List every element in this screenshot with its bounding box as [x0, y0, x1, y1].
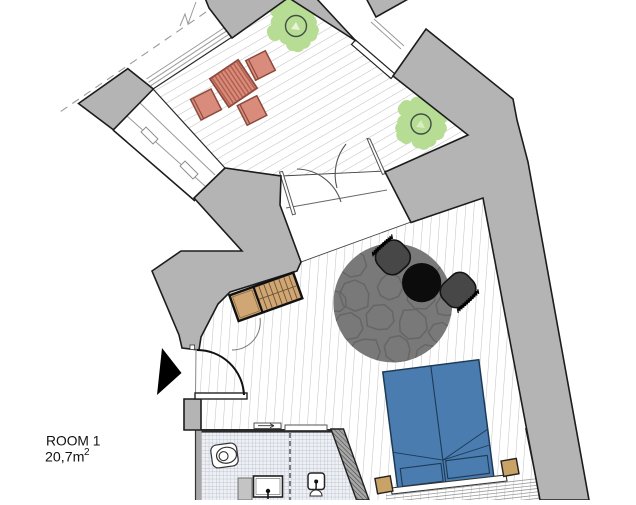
svg-text:20,7m: 20,7m — [45, 450, 84, 466]
svg-text:ROOM 1: ROOM 1 — [46, 434, 100, 449]
svg-text:2: 2 — [84, 447, 90, 458]
